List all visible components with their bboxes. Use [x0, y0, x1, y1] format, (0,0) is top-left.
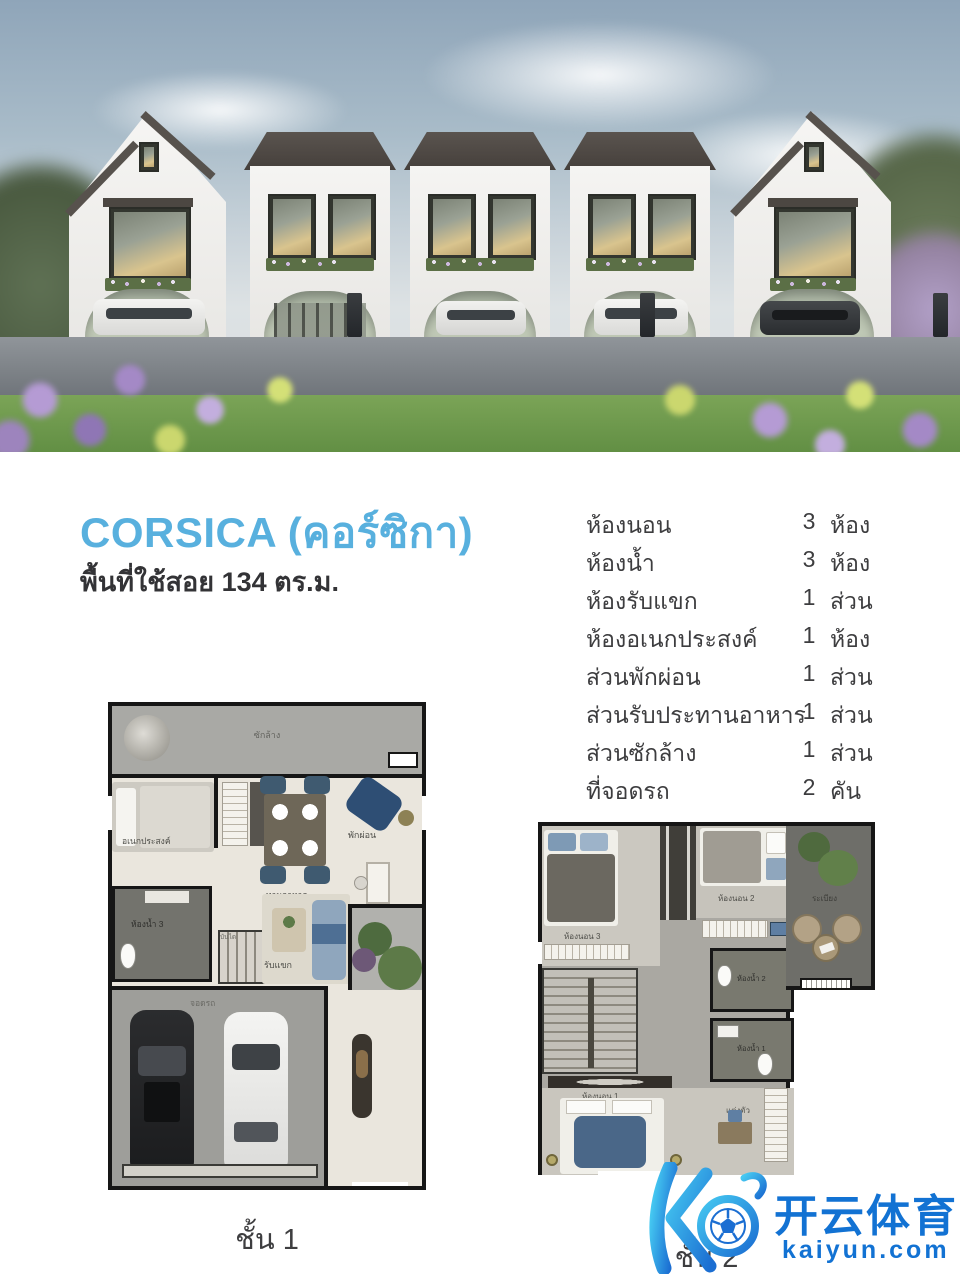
watermark: 开云体育 kaiyun.com: [640, 1160, 960, 1275]
bed: [700, 828, 790, 886]
attic-window: [804, 142, 824, 172]
spec-unit: ส่วน: [830, 660, 873, 696]
spec-count: 3: [798, 546, 820, 573]
upper-window: [588, 194, 636, 260]
room-label-stairs: บันได: [220, 932, 236, 942]
kaiyun-logo-icon: [640, 1162, 770, 1274]
specs-table: ห้องนอน 3 ห้อง ห้องน้ำ 3 ห้อง ห้องรับแขก…: [586, 502, 926, 806]
ac-unit: [388, 752, 418, 768]
dark-car: [760, 301, 860, 335]
bed: [544, 830, 618, 926]
laundry-area: ซักล้าง: [112, 706, 422, 778]
flower-bed-right: [620, 350, 960, 452]
wardrobe: [660, 826, 696, 920]
spec-row-dining: ส่วนรับประทานอาหาร 1 ส่วน: [586, 692, 926, 730]
bedroom-3: ห้องนอน 3: [542, 826, 660, 966]
garage-door: [122, 1164, 318, 1178]
desk: [366, 862, 390, 904]
dining-chair: [304, 776, 330, 794]
dining-chair: [260, 866, 286, 884]
wall: [214, 778, 218, 848]
bedroom-2: ห้องนอน 2: [696, 826, 794, 918]
flower-box: [586, 258, 694, 271]
spec-count: 1: [798, 698, 820, 725]
upper-window: [774, 207, 856, 281]
bed-lamp: [546, 1154, 558, 1166]
sofa: [312, 900, 346, 980]
window-gap: [108, 796, 112, 830]
attic-window: [139, 142, 159, 172]
plant: [378, 946, 422, 990]
flower-box: [266, 258, 374, 271]
sink-counter: [145, 891, 189, 903]
bathroom-3: ห้องน้ำ 3: [112, 886, 212, 982]
page-title: CORSICA (คอร์ซิกา): [80, 500, 473, 566]
charger-post: [640, 293, 655, 337]
balcony: ระเบียง: [786, 822, 875, 990]
upper-window: [109, 207, 191, 281]
room-label-living: รับแขก: [264, 958, 292, 972]
room-label-bedroom3: ห้องนอน 3: [564, 930, 600, 943]
room-label-relax: พักผ่อน: [348, 828, 376, 842]
closet: [702, 920, 768, 938]
charger-post: [933, 293, 948, 337]
room-label-laundry: ซักล้าง: [112, 728, 422, 742]
spec-count: 2: [798, 774, 820, 801]
spec-label: ห้องรับแขก: [586, 584, 698, 620]
dining-chair: [260, 776, 286, 794]
plant: [818, 850, 858, 886]
spec-row-bedrooms: ห้องนอน 3 ห้อง: [586, 502, 926, 540]
house-unit-5: [720, 112, 905, 337]
upper-window: [648, 194, 696, 260]
spec-row-laundry: ส่วนซักล้าง 1 ส่วน: [586, 730, 926, 768]
room-label-parking: จอดรถ: [190, 996, 215, 1010]
room-label-bedroom2: ห้องนอน 2: [718, 892, 754, 905]
house-unit-2: [240, 132, 400, 337]
window-awning: [103, 198, 193, 207]
room-label-balcony: ระเบียง: [812, 892, 837, 905]
spec-count: 1: [798, 584, 820, 611]
garage: จอดรถ: [112, 986, 328, 1186]
bathroom-2: ห้องน้ำ 2: [710, 948, 794, 1012]
spec-row-parking: ที่จอดรถ 2 คัน: [586, 768, 926, 806]
spec-label: ห้องอเนกประสงค์: [586, 622, 758, 658]
plant-purple: [352, 948, 376, 972]
terrace: [348, 904, 422, 990]
spec-unit: ห้อง: [830, 546, 870, 582]
hip-roof: [404, 132, 556, 170]
tv-console: [548, 1076, 672, 1088]
room-label-bath3: ห้องน้ำ 3: [131, 917, 164, 931]
dining-chair: [304, 866, 330, 884]
floorplan-floor1: ซักล้าง อเนกประสงค์ ทานอาหาร พักผ่อน ห้อ…: [108, 702, 426, 1190]
floorplan-floor2: ห้องนอน 3 ห้องนอน 2 ห้องน้ำ 2: [538, 822, 875, 1175]
spec-label: ส่วนรับประทานอาหาร: [586, 698, 806, 734]
window-awning: [768, 198, 858, 207]
round-table: [812, 934, 840, 962]
flower-box: [426, 258, 534, 271]
spec-row-multipurpose: ห้องอเนกประสงค์ 1 ห้อง: [586, 616, 926, 654]
staircase: [542, 968, 638, 1074]
closet: [764, 1088, 788, 1162]
sink: [717, 1025, 739, 1038]
spec-label: ห้องน้ำ: [586, 546, 655, 582]
spec-unit: ส่วน: [830, 584, 873, 620]
spec-count: 3: [798, 508, 820, 535]
toilet: [717, 965, 732, 987]
spec-unit: คัน: [830, 774, 861, 810]
motorcycle: [352, 1034, 372, 1118]
townhouse-row: [55, 112, 905, 337]
spec-label: ส่วนพักผ่อน: [586, 660, 701, 696]
spec-count: 1: [798, 736, 820, 763]
balcony-window: [800, 978, 852, 990]
house-unit-3: [400, 132, 560, 337]
spec-unit: ส่วน: [830, 736, 873, 772]
charger-post: [347, 293, 362, 337]
hip-roof: [244, 132, 396, 170]
upper-window: [268, 194, 316, 260]
upper-window: [328, 194, 376, 260]
area-subtitle: พื้นที่ใช้สอย 134 ตร.ม.: [80, 560, 339, 603]
upper-window: [488, 194, 536, 260]
hip-roof: [564, 132, 716, 170]
dresser: [718, 1122, 752, 1144]
spec-row-livingroom: ห้องรับแขก 1 ส่วน: [586, 578, 926, 616]
spec-label: ห้องนอน: [586, 508, 671, 544]
black-car: [130, 1010, 194, 1174]
white-suv: [93, 299, 205, 335]
window-gap: [538, 942, 542, 964]
room-label-bath2: ห้องน้ำ 2: [737, 973, 766, 985]
floor1-caption: ชั้น 1: [108, 1216, 426, 1262]
white-car: [224, 1012, 288, 1172]
watermark-brand: 开云体育: [774, 1180, 958, 1244]
window-gap: [352, 1182, 408, 1186]
toilet: [120, 943, 136, 969]
room-label-multipurpose: อเนกประสงค์: [122, 834, 171, 848]
toilet: [757, 1053, 773, 1076]
bathroom-1: ห้องน้ำ 1: [710, 1018, 794, 1082]
spec-row-relax: ส่วนพักผ่อน 1 ส่วน: [586, 654, 926, 692]
house-unit-1: [55, 112, 240, 337]
closet: [544, 944, 630, 960]
coffee-table: [272, 908, 306, 952]
spec-unit: ส่วน: [830, 698, 873, 734]
brochure-page: CORSICA (คอร์ซิกา) พื้นที่ใช้สอย 134 ตร.…: [0, 0, 960, 1275]
side-table: [398, 810, 414, 826]
white-car: [436, 301, 526, 335]
upper-window: [428, 194, 476, 260]
spec-unit: ห้อง: [830, 622, 870, 658]
desk-chair: [354, 876, 368, 890]
window-gap: [422, 796, 426, 830]
dining-table: [264, 794, 326, 866]
spec-unit: ห้อง: [830, 508, 870, 544]
lounge-chair: [343, 774, 405, 834]
floor2-main-block: ห้องนอน 3 ห้องนอน 2 ห้องน้ำ 2: [538, 822, 790, 1175]
spec-label: ที่จอดรถ: [586, 774, 670, 810]
spec-label: ส่วนซักล้าง: [586, 736, 696, 772]
watermark-domain: kaiyun.com: [782, 1236, 950, 1265]
hero-render-image: [0, 0, 960, 452]
spec-row-bathrooms: ห้องน้ำ 3 ห้อง: [586, 540, 926, 578]
spec-count: 1: [798, 622, 820, 649]
flower-bed-left: [0, 340, 380, 452]
wardrobe: [222, 782, 248, 846]
room-label-bath1: ห้องน้ำ 1: [737, 1043, 766, 1055]
spec-count: 1: [798, 660, 820, 687]
